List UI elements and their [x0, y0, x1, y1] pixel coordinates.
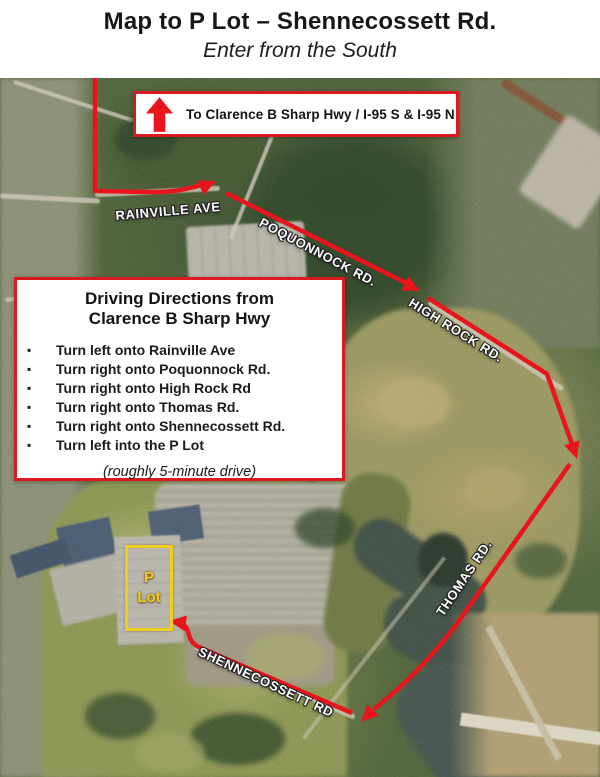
route-arrow-rainville: [197, 174, 219, 196]
directions-step: Turn right onto Shennecossett Rd.: [17, 417, 342, 436]
route-arrow-highrock: [564, 440, 584, 461]
highway-banner-text: To Clarence B Sharp Hwy / I-95 S & I-95 …: [186, 107, 455, 122]
p-lot-marker: P Lot: [125, 545, 173, 631]
page-header: Map to P Lot – Shennecossett Rd. Enter f…: [0, 0, 600, 78]
map-flyer: Map to P Lot – Shennecossett Rd. Enter f…: [0, 0, 600, 777]
directions-panel: Driving Directions from Clarence B Sharp…: [14, 277, 345, 481]
directions-step: Turn left onto Rainville Ave: [17, 341, 342, 360]
directions-title-line1: Driving Directions from: [17, 289, 342, 309]
route-arrow-poquonnock: [401, 276, 423, 298]
highway-banner: To Clarence B Sharp Hwy / I-95 S & I-95 …: [133, 91, 459, 137]
satellite-map: RAINVILLE AVE POQUONNOCK RD. HIGH ROCK R…: [0, 78, 600, 777]
route-segment-thomas: [374, 464, 570, 709]
p-lot-label-line1: P: [144, 570, 154, 586]
page-title: Map to P Lot – Shennecossett Rd.: [0, 8, 600, 36]
p-lot-label-line2: Lot: [137, 590, 160, 606]
directions-step-list: Turn left onto Rainville Ave Turn right …: [17, 341, 342, 455]
page-subtitle: Enter from the South: [0, 39, 600, 63]
directions-title-line2: Clarence B Sharp Hwy: [17, 309, 342, 329]
directions-step: Turn right onto Poquonnock Rd.: [17, 360, 342, 379]
route-segment-poquonnock: [226, 193, 406, 283]
directions-step: Turn right onto High Rock Rd: [17, 379, 342, 398]
up-arrow-icon: [145, 97, 174, 132]
route-segment-shennecossett: [183, 624, 352, 713]
directions-note: (roughly 5-minute drive): [17, 464, 342, 480]
directions-step: Turn right onto Thomas Rd.: [17, 398, 342, 417]
directions-step: Turn left into the P Lot: [17, 436, 342, 455]
